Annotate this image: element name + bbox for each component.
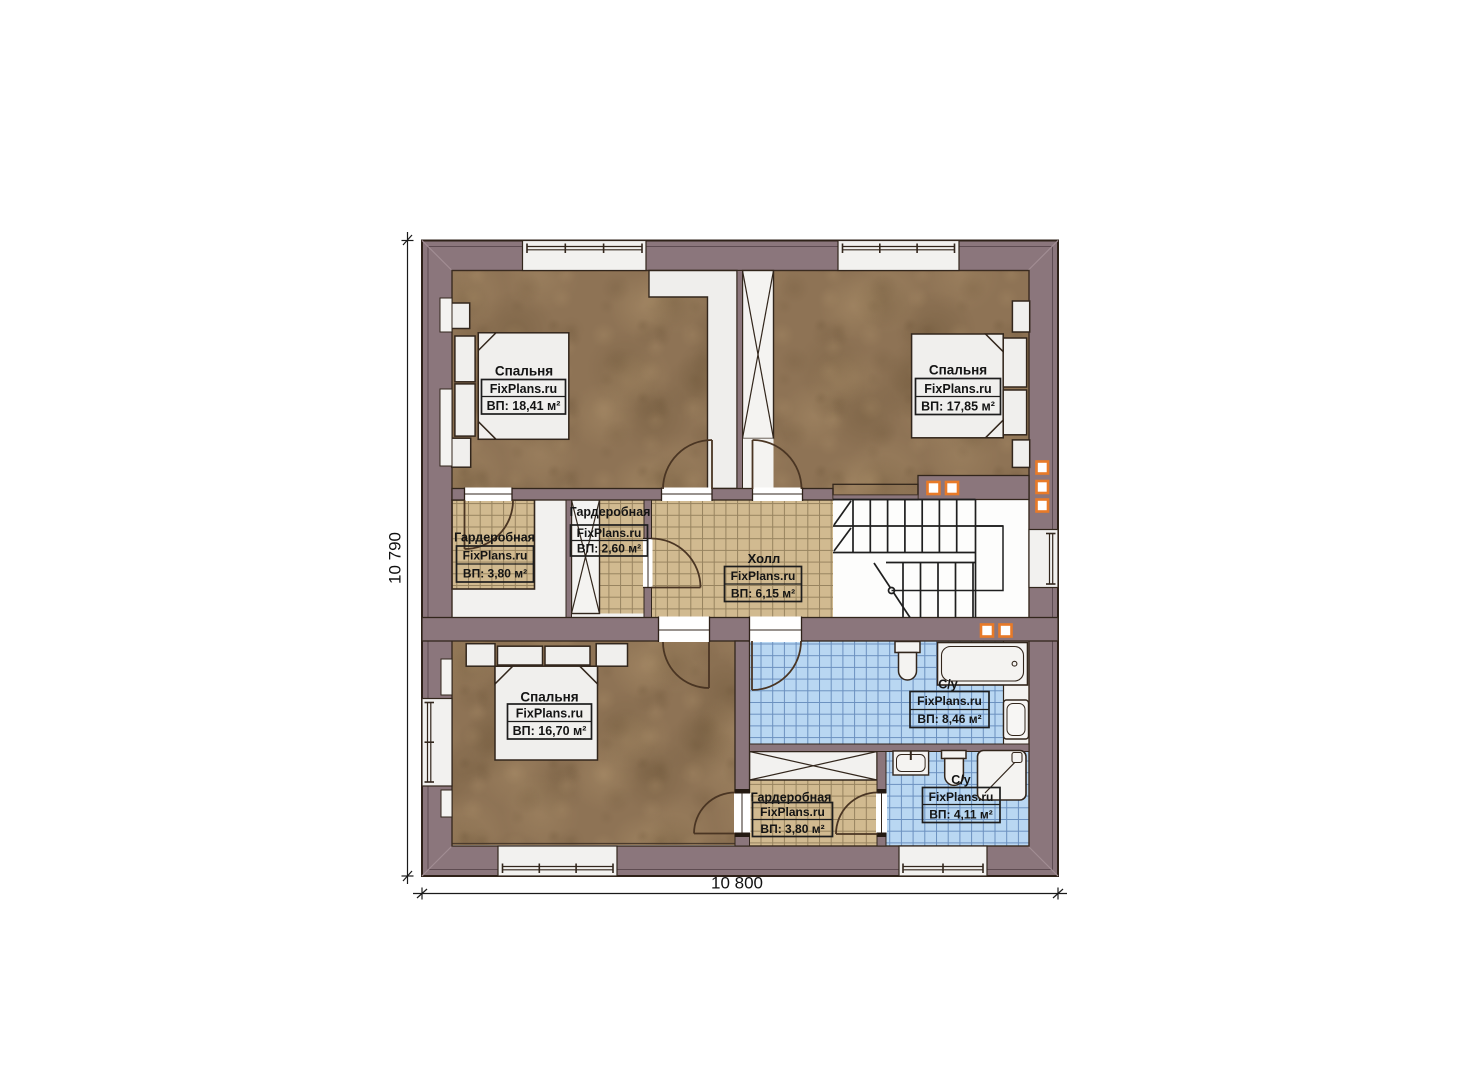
svg-text:FixPlans.ru: FixPlans.ru: [516, 706, 583, 720]
svg-text:С/у: С/у: [938, 678, 958, 692]
svg-text:ВП: 3,80 м²: ВП: 3,80 м²: [760, 822, 824, 836]
svg-text:Спальня: Спальня: [520, 690, 578, 705]
svg-text:FixPlans.ru: FixPlans.ru: [924, 382, 991, 396]
svg-text:С/у: С/у: [951, 773, 971, 787]
svg-text:FixPlans.ru: FixPlans.ru: [731, 569, 796, 583]
svg-text:ВП: 2,60 м²: ВП: 2,60 м²: [577, 542, 641, 556]
svg-text:Спальня: Спальня: [929, 363, 987, 378]
svg-text:FixPlans.ru: FixPlans.ru: [929, 790, 994, 804]
svg-text:FixPlans.ru: FixPlans.ru: [917, 694, 982, 708]
svg-text:Спальня: Спальня: [495, 364, 553, 379]
svg-text:FixPlans.ru: FixPlans.ru: [490, 382, 557, 396]
svg-text:ВП: 3,80 м²: ВП: 3,80 м²: [463, 567, 527, 581]
svg-text:ВП: 6,15 м²: ВП: 6,15 м²: [731, 586, 795, 600]
svg-text:ВП: 4,11 м²: ВП: 4,11 м²: [929, 807, 993, 821]
svg-text:Гардеробная: Гардеробная: [570, 505, 651, 519]
svg-text:ВП: 8,46 м²: ВП: 8,46 м²: [917, 712, 981, 726]
svg-text:Холл: Холл: [748, 551, 781, 566]
svg-text:10 790: 10 790: [386, 532, 405, 584]
svg-text:Гардеробная: Гардеробная: [454, 531, 535, 545]
svg-text:ВП: 17,85 м²: ВП: 17,85 м²: [921, 400, 995, 414]
svg-text:FixPlans.ru: FixPlans.ru: [577, 526, 642, 540]
svg-text:FixPlans.ru: FixPlans.ru: [760, 805, 825, 819]
svg-text:ВП: 18,41 м²: ВП: 18,41 м²: [487, 399, 561, 413]
svg-text:ВП: 16,70 м²: ВП: 16,70 м²: [513, 724, 587, 738]
svg-text:FixPlans.ru: FixPlans.ru: [463, 549, 528, 563]
svg-text:10 800: 10 800: [711, 874, 763, 893]
